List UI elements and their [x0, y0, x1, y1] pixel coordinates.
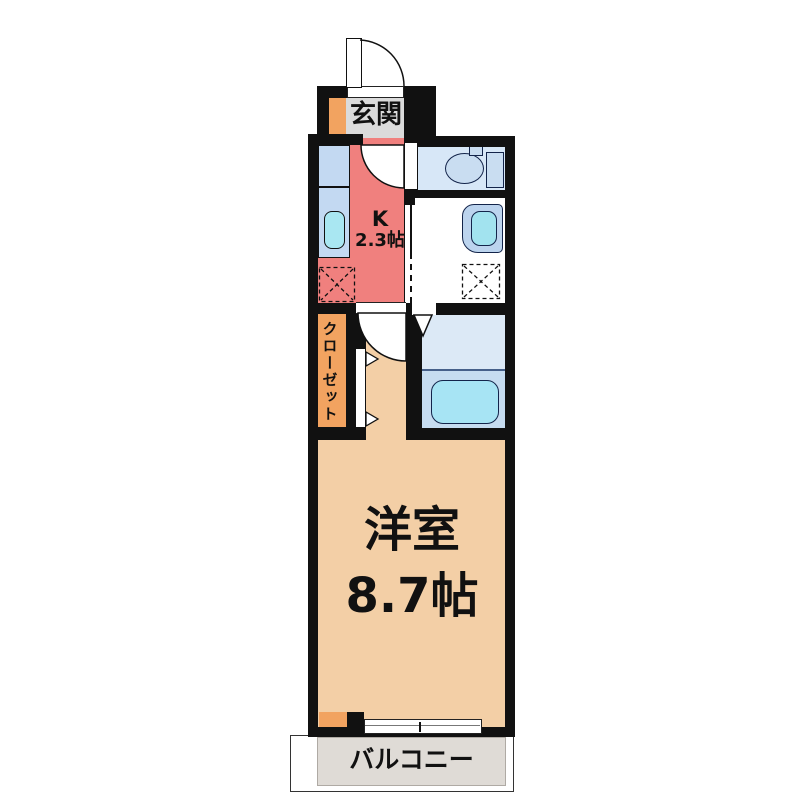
western-room-label-size: 8.7帖	[318, 570, 506, 623]
washing-machine-space	[463, 265, 500, 299]
kitchen-label-type: K	[348, 208, 412, 231]
refrigerator-space	[320, 268, 355, 302]
entry-door-swing-arc	[360, 40, 404, 86]
floor-plan: 玄関 K 2.3帖 クローゼット 洋室 8.7帖 バルコニー	[0, 0, 800, 800]
closet-door-marker-top	[366, 352, 378, 366]
kitchen-door-swing	[361, 145, 404, 188]
closet-label: クローゼット	[321, 317, 338, 427]
kitchen-label: K 2.3帖	[348, 208, 412, 251]
closet-door-marker-bottom	[366, 412, 378, 426]
room-door-swing	[358, 313, 406, 361]
genkan-label: 玄関	[346, 101, 406, 130]
balcony-label: バルコニー	[317, 746, 506, 774]
western-room-label-name: 洋室	[318, 504, 506, 557]
kitchen-label-size: 2.3帖	[348, 231, 412, 251]
western-room-label: 洋室 8.7帖	[318, 504, 506, 623]
bath-folding-door-marker	[414, 315, 432, 336]
